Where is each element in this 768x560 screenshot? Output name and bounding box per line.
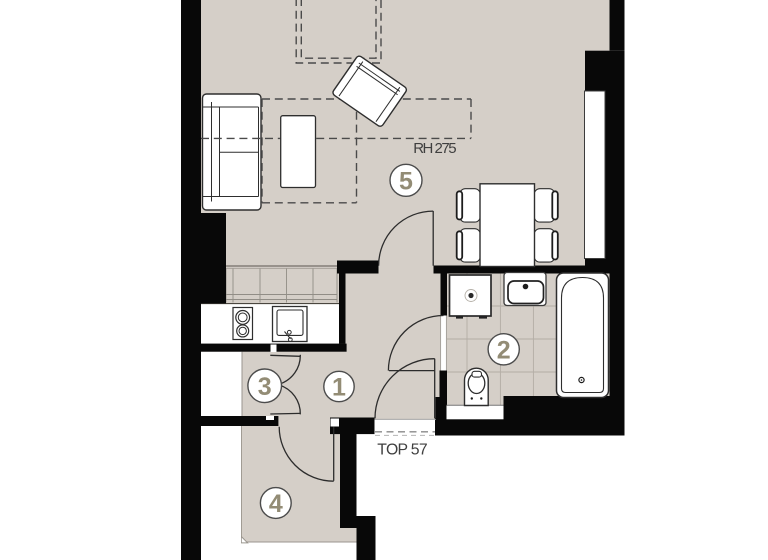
svg-text:1: 1 xyxy=(332,374,346,402)
svg-text:5: 5 xyxy=(399,167,413,195)
svg-text:3: 3 xyxy=(258,373,272,401)
svg-text:4: 4 xyxy=(269,490,283,518)
svg-text:RH 275: RH 275 xyxy=(413,140,456,157)
svg-text:TOP 57: TOP 57 xyxy=(377,442,427,459)
svg-text:2: 2 xyxy=(497,336,511,364)
